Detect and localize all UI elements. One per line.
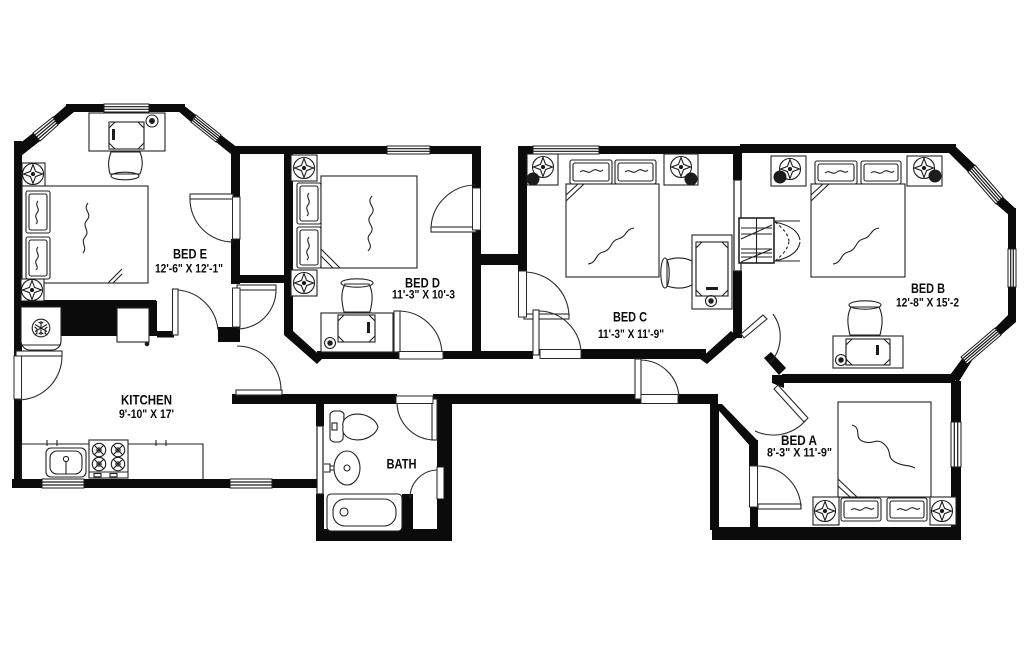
svg-text:11'-3" X 11'-9": 11'-3" X 11'-9"	[598, 327, 664, 341]
svg-text:KITCHEN: KITCHEN	[121, 393, 172, 408]
svg-text:12'-6" X 12'-1": 12'-6" X 12'-1"	[155, 262, 223, 276]
svg-text:BED E: BED E	[173, 247, 207, 262]
svg-text:8'-3" X 11'-9": 8'-3" X 11'-9"	[767, 446, 832, 460]
svg-text:BED C: BED C	[613, 310, 647, 325]
svg-text:BATH: BATH	[387, 457, 417, 472]
svg-text:BED B: BED B	[911, 281, 945, 296]
svg-text:9'-10" X 17': 9'-10" X 17'	[119, 407, 174, 421]
svg-text:12'-8" X 15'-2: 12'-8" X 15'-2	[896, 296, 959, 310]
svg-text:11'-3" X 10'-3: 11'-3" X 10'-3	[392, 288, 455, 302]
